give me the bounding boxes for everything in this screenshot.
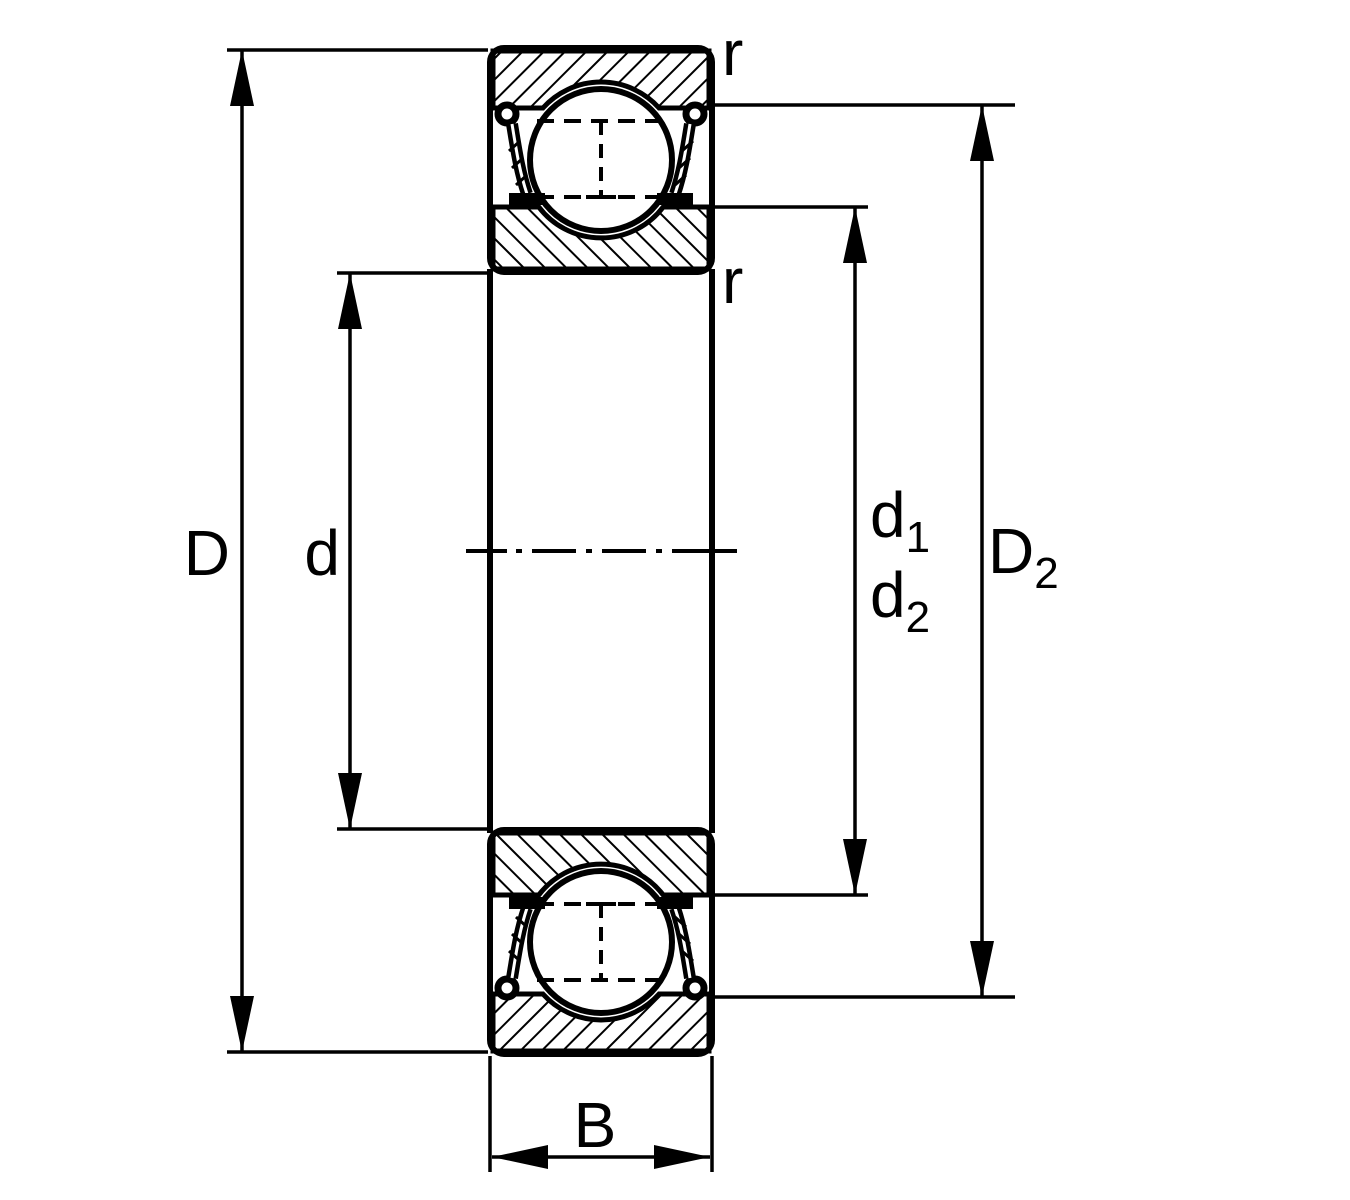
- shield-foot: [509, 897, 545, 909]
- top-ball: [530, 89, 672, 231]
- dimension-d1-d2: d1 d2: [712, 207, 930, 895]
- dimension-d: d: [304, 273, 488, 829]
- arrow-down-icon: [338, 773, 362, 829]
- bearing-section-drawing: D d d1 d2 D2 B r r: [0, 0, 1350, 1200]
- arrow-down-icon: [230, 996, 254, 1052]
- shield-curl-icon: [498, 105, 516, 123]
- shield-curl-icon: [498, 979, 516, 997]
- arrow-up-icon: [970, 105, 994, 161]
- dimension-D2: D2: [712, 105, 1059, 997]
- bearing-top-section: [490, 48, 712, 272]
- arrow-down-icon: [843, 839, 867, 895]
- arrow-down-icon: [970, 941, 994, 997]
- bottom-ball: [530, 871, 672, 1013]
- label-D: D: [184, 517, 230, 589]
- arrow-left-icon: [492, 1145, 548, 1169]
- arrow-up-icon: [843, 207, 867, 263]
- label-D2: D2: [988, 515, 1059, 598]
- shield-curl-icon: [686, 979, 704, 997]
- dimension-B: B: [490, 1056, 712, 1172]
- shield-foot: [509, 193, 545, 205]
- arrow-up-icon: [230, 50, 254, 106]
- drawing-sheet: D d d1 d2 D2 B r r: [0, 0, 1350, 1200]
- label-r-outer: r: [722, 17, 743, 89]
- arrow-right-icon: [654, 1145, 710, 1169]
- label-B: B: [574, 1089, 617, 1161]
- chamfer-labels: r r: [722, 17, 743, 317]
- shield-foot: [657, 897, 693, 909]
- label-r-inner: r: [722, 245, 743, 317]
- label-d: d: [304, 517, 340, 589]
- label-d2: d2: [870, 559, 930, 642]
- bearing-bottom-section: [490, 830, 712, 1054]
- shield-foot: [657, 193, 693, 205]
- arrow-up-icon: [338, 273, 362, 329]
- shield-curl-icon: [686, 105, 704, 123]
- label-d1: d1: [870, 479, 930, 562]
